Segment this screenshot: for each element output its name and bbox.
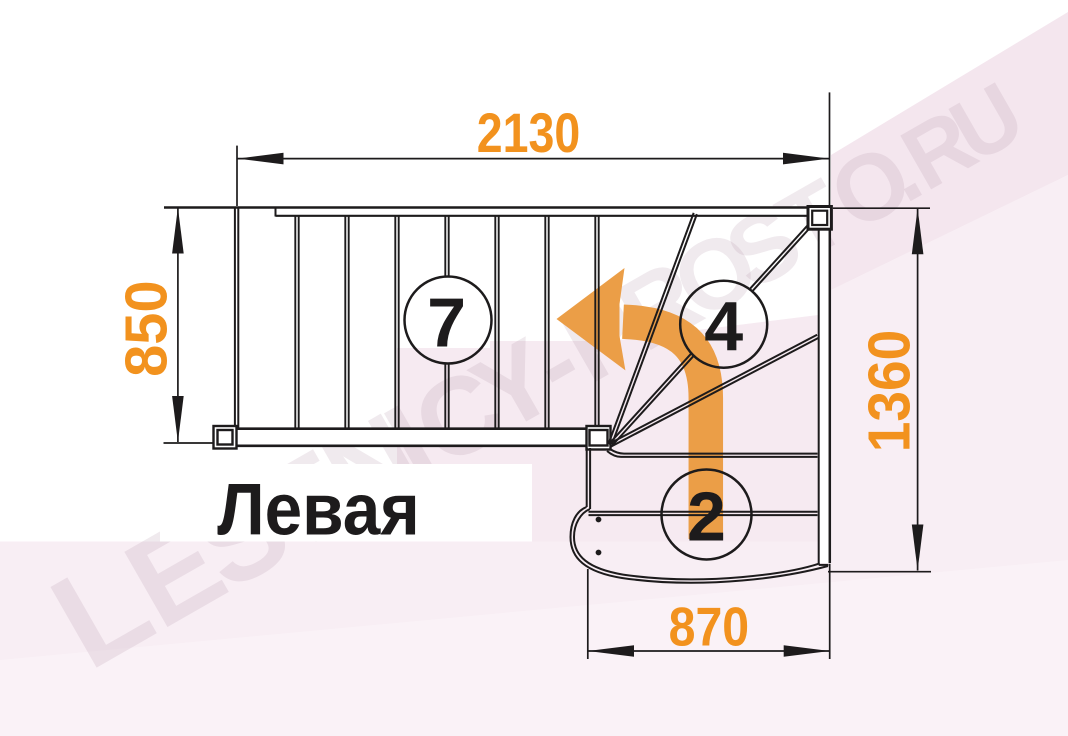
svg-text:2130: 2130 (477, 101, 581, 164)
svg-text:2: 2 (687, 478, 726, 556)
svg-text:4: 4 (704, 288, 743, 366)
svg-text:1360: 1360 (857, 330, 923, 453)
svg-text:7: 7 (427, 283, 466, 361)
svg-text:870: 870 (669, 597, 750, 658)
svg-text:850: 850 (114, 280, 180, 377)
svg-text:Левая: Левая (217, 470, 420, 551)
